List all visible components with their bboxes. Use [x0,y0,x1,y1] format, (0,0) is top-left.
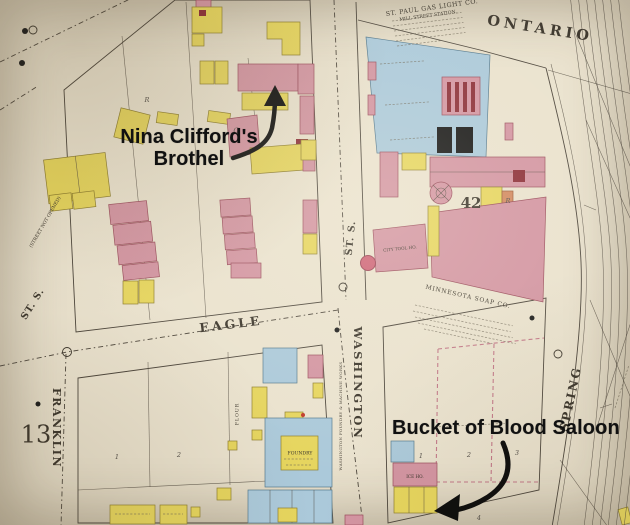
landmark-foundry: FOUNDRY [288,451,314,457]
hydrant-dot [530,316,535,321]
lot-number-se-3: 3 [515,449,519,457]
map-canvas: ONTARIO EAGLE WASHINGTON FRANKLIN SPRING… [0,0,630,525]
landmark-foundry-works: WASHINGTON FOUNDRY & MACHINE WORKS [338,362,343,471]
landmark-ice-house: ICE HO. [406,474,423,479]
soap-company-building [430,197,546,302]
lot-number-se-1: 1 [419,452,423,460]
gas-valve-marker [361,256,376,271]
hydrant-dot [19,60,25,66]
saloon-arrow [456,443,508,510]
buildings-southeast-block [391,441,630,525]
brothel-building [238,64,298,91]
manhole-symbol [554,350,562,358]
manhole-symbol [339,283,347,291]
hydrant-dot [335,328,340,333]
street-label-ontario: ONTARIO [486,12,594,45]
district-number-13: 13 [21,421,52,449]
saloon-building [394,487,437,513]
annotation-brothel-line2: Brothel [116,148,262,170]
annotation-saloon: Bucket of Blood Saloon [392,417,620,439]
street-label-washington: WASHINGTON [351,325,365,439]
railroad-tracks [546,0,630,525]
lot-number-se-2: 2 [466,451,471,459]
hydrant-dot [22,28,28,34]
manhole-symbol [29,26,37,34]
lot-number-sw-2: 2 [176,451,181,459]
street-note-not-opened: (STREET NOT OPENED) [27,195,62,249]
lot-number-sw-1: 1 [115,453,119,461]
gas-works-buildings [366,37,546,302]
lot-boundaries-southeast [436,338,544,482]
street-label-st-s-west: ST. S. [19,286,47,322]
saloon-arrowhead [434,494,460,521]
district-number-42: 42 [461,194,482,212]
landmark-flour: FLOUR [235,403,241,425]
street-label-st-s-mid: ST. S. [344,220,359,256]
street-label-franklin: FRANKLIN [50,388,63,468]
building-letter-r-east: R [505,197,511,205]
building-letter-r-west: R [144,96,150,104]
sanborn-map: ONTARIO EAGLE WASHINGTON FRANKLIN SPRING… [0,0,630,525]
manhole-symbol [63,348,72,357]
annotation-brothel: Nina Clifford's Brothel [116,126,262,170]
lot-number-se-4: 4 [476,514,481,522]
hydrant-dot [36,402,41,407]
annotation-brothel-line1: Nina Clifford's [116,126,262,148]
